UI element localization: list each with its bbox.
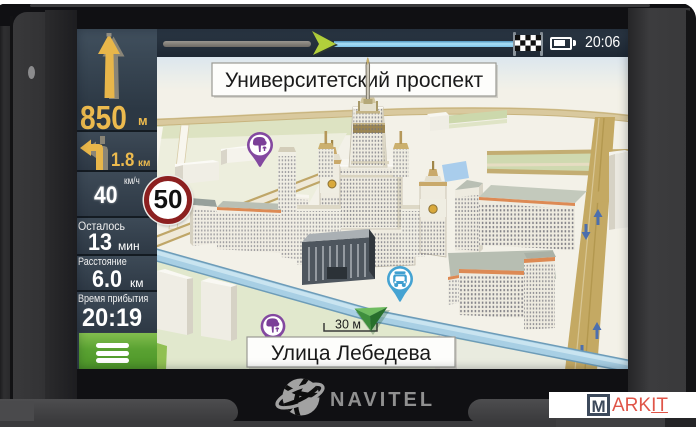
svg-text:30 м: 30 м (335, 318, 361, 332)
svg-text:NAVITEL: NAVITEL (330, 389, 435, 411)
svg-text:Улица Лебедева: Улица Лебедева (271, 342, 432, 365)
svg-text:Университетский проспект: Университетский проспект (225, 69, 484, 92)
